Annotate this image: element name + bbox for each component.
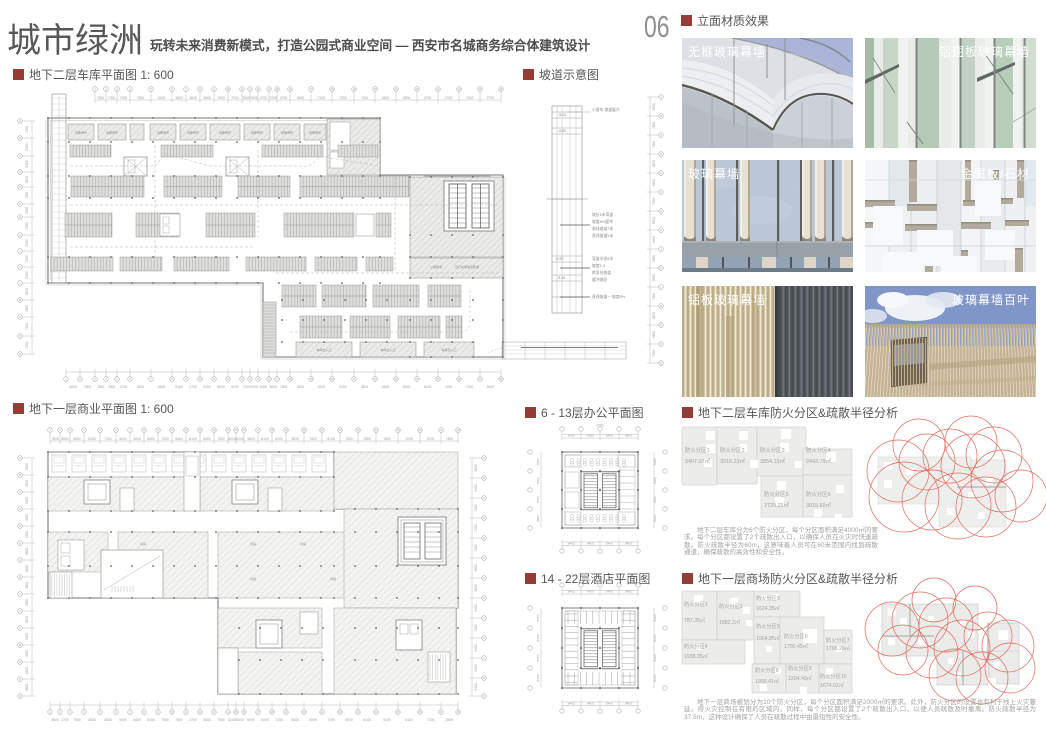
svg-text:8100: 8100 <box>652 103 656 110</box>
svg-text:8100: 8100 <box>203 385 211 389</box>
svg-text:8400: 8400 <box>536 674 540 681</box>
svg-text:7800: 7800 <box>345 437 353 441</box>
svg-text:N: N <box>19 315 21 319</box>
svg-text:A: A <box>483 456 485 460</box>
svg-text:G: G <box>19 215 21 219</box>
svg-text:商铺: 商铺 <box>300 541 306 546</box>
svg-text:K: K <box>660 266 662 270</box>
svg-text:3600: 3600 <box>51 718 59 722</box>
svg-text:5400: 5400 <box>203 437 211 441</box>
svg-text:7200: 7200 <box>652 141 656 148</box>
svg-text:5: 5 <box>99 710 101 714</box>
svg-text:3600: 3600 <box>133 437 141 441</box>
svg-text:1: 1 <box>65 377 67 381</box>
svg-text:防火分区5: 防火分区5 <box>756 622 780 630</box>
svg-text:3407.07㎡: 3407.07㎡ <box>685 457 710 465</box>
svg-text:8400: 8400 <box>653 477 657 484</box>
svg-text:6000: 6000 <box>231 385 239 389</box>
svg-text:坡度2-3: 坡度2-3 <box>592 263 605 268</box>
svg-text:1624.35㎡: 1624.35㎡ <box>756 604 781 612</box>
svg-text:28: 28 <box>499 377 503 381</box>
svg-text:J: J <box>19 592 21 596</box>
svg-text:防火分区6: 防火分区6 <box>784 632 808 640</box>
svg-text:8100: 8100 <box>25 463 29 470</box>
svg-text:8100: 8100 <box>275 437 283 441</box>
svg-text:22: 22 <box>338 428 342 432</box>
svg-text:7200: 7200 <box>652 122 656 129</box>
svg-text:L: L <box>19 626 21 630</box>
svg-text:8100: 8100 <box>228 718 236 722</box>
svg-text:3600: 3600 <box>652 331 656 338</box>
svg-text:8400: 8400 <box>568 702 575 706</box>
svg-text:17: 17 <box>256 710 260 714</box>
svg-text:26: 26 <box>418 428 422 432</box>
svg-text:5400: 5400 <box>474 664 478 671</box>
svg-text:23: 23 <box>356 710 360 714</box>
svg-text:12: 12 <box>198 428 202 432</box>
svg-text:N: N <box>19 660 21 664</box>
svg-text:8100: 8100 <box>339 385 347 389</box>
svg-text:8100: 8100 <box>318 385 326 389</box>
svg-text:4700: 4700 <box>596 424 603 428</box>
svg-text:8400: 8400 <box>536 614 540 621</box>
svg-text:8400: 8400 <box>587 702 594 706</box>
svg-text:7200: 7200 <box>652 198 656 205</box>
svg-text:-5.20: -5.20 <box>558 113 566 117</box>
svg-text:8: 8 <box>143 710 145 714</box>
svg-text:2700: 2700 <box>120 385 128 389</box>
svg-text:7800: 7800 <box>217 437 225 441</box>
svg-text:21: 21 <box>394 87 398 91</box>
svg-text:2700: 2700 <box>487 96 495 100</box>
svg-text:7200: 7200 <box>242 385 250 389</box>
svg-text:3600: 3600 <box>382 385 390 389</box>
svg-text:7200: 7200 <box>445 385 453 389</box>
svg-text:3600: 3600 <box>189 96 197 100</box>
svg-text:1674.02㎡: 1674.02㎡ <box>820 681 845 689</box>
svg-text:3600: 3600 <box>25 548 29 555</box>
svg-text:2: 2 <box>105 87 107 91</box>
svg-text:D: D <box>660 152 662 156</box>
svg-text:防火分区8: 防火分区8 <box>755 666 779 674</box>
svg-text:13: 13 <box>212 428 216 432</box>
svg-text:防火分区2: 防火分区2 <box>719 602 743 610</box>
svg-text:2700: 2700 <box>445 96 453 100</box>
svg-text:19: 19 <box>352 87 356 91</box>
svg-text:5400: 5400 <box>25 514 29 521</box>
svg-text:19: 19 <box>284 428 288 432</box>
svg-text:9: 9 <box>213 87 215 91</box>
svg-text:H: H <box>483 596 485 600</box>
svg-text:8100: 8100 <box>189 437 197 441</box>
svg-text:6000: 6000 <box>247 718 255 722</box>
svg-text:3600: 3600 <box>474 564 478 571</box>
svg-text:8100: 8100 <box>25 565 29 572</box>
svg-text:7: 7 <box>129 428 131 432</box>
svg-text:设备用房: 设备用房 <box>106 130 118 135</box>
svg-text:1904.95㎡: 1904.95㎡ <box>756 634 781 642</box>
svg-text:13: 13 <box>256 87 260 91</box>
svg-text:5400: 5400 <box>297 385 305 389</box>
svg-text:2700: 2700 <box>61 718 69 722</box>
svg-text:D: D <box>19 507 21 511</box>
svg-text:设备用房: 设备用房 <box>219 130 231 135</box>
svg-text:8100: 8100 <box>25 160 29 167</box>
svg-text:12: 12 <box>198 710 202 714</box>
svg-text:防火分区7: 防火分区7 <box>826 636 850 644</box>
svg-text:P: P <box>19 677 21 681</box>
svg-text:设备用房: 设备用房 <box>281 130 293 135</box>
svg-text:3600: 3600 <box>652 255 656 262</box>
svg-text:5400: 5400 <box>25 497 29 504</box>
svg-text:16: 16 <box>288 87 292 91</box>
svg-text:7200: 7200 <box>25 323 29 330</box>
svg-text:19: 19 <box>309 377 313 381</box>
svg-text:12: 12 <box>226 377 230 381</box>
svg-text:8400: 8400 <box>536 496 540 503</box>
svg-text:5400: 5400 <box>25 633 29 640</box>
svg-text:7200: 7200 <box>231 96 239 100</box>
svg-text:24: 24 <box>415 377 419 381</box>
svg-text:18: 18 <box>270 428 274 432</box>
svg-text:8100: 8100 <box>405 718 413 722</box>
svg-text:7800: 7800 <box>108 385 116 389</box>
svg-text:D: D <box>483 516 485 520</box>
svg-text:9: 9 <box>157 428 159 432</box>
svg-text:1: 1 <box>49 428 51 432</box>
svg-text:7800: 7800 <box>446 437 454 441</box>
svg-text:7200: 7200 <box>318 96 326 100</box>
svg-text:3015.69㎡: 3015.69㎡ <box>806 501 831 509</box>
svg-text:6000: 6000 <box>345 718 353 722</box>
svg-text:3600: 3600 <box>69 385 77 389</box>
svg-text:5: 5 <box>99 428 101 432</box>
svg-text:7200: 7200 <box>269 96 277 100</box>
svg-text:787.35㎡: 787.35㎡ <box>684 616 706 624</box>
svg-text:5400: 5400 <box>25 207 29 214</box>
svg-text:7800: 7800 <box>309 437 317 441</box>
svg-text:N: N <box>660 323 662 327</box>
svg-text:G: G <box>483 576 485 580</box>
svg-text:6000: 6000 <box>236 718 244 722</box>
svg-text:设备用房: 设备用房 <box>75 130 87 135</box>
svg-text:8100: 8100 <box>25 667 29 674</box>
svg-text:商铺: 商铺 <box>330 576 336 581</box>
svg-text:E: E <box>19 185 21 189</box>
svg-text:8100: 8100 <box>25 616 29 623</box>
svg-text:6000: 6000 <box>119 437 127 441</box>
svg-text:-6.60: -6.60 <box>558 129 566 133</box>
svg-text:J: J <box>19 249 21 253</box>
svg-text:7200: 7200 <box>25 126 29 133</box>
svg-text:5400: 5400 <box>119 718 127 722</box>
svg-text:8400: 8400 <box>625 702 632 706</box>
svg-text:3600: 3600 <box>203 96 211 100</box>
svg-text:8400: 8400 <box>653 674 657 681</box>
svg-text:E: E <box>660 171 662 175</box>
svg-text:10: 10 <box>198 377 202 381</box>
svg-text:3600: 3600 <box>291 437 299 441</box>
svg-text:7800: 7800 <box>383 437 391 441</box>
svg-text:3854.15㎡: 3854.15㎡ <box>760 457 785 465</box>
svg-text:3916.23㎡: 3916.23㎡ <box>720 457 745 465</box>
svg-text:F: F <box>483 556 485 560</box>
svg-text:25: 25 <box>396 710 400 714</box>
svg-text:F: F <box>19 202 21 206</box>
svg-text:3600: 3600 <box>88 718 96 722</box>
svg-text:13: 13 <box>212 710 216 714</box>
svg-text:7200: 7200 <box>405 437 413 441</box>
svg-text:23: 23 <box>436 87 440 91</box>
svg-text:23: 23 <box>394 377 398 381</box>
svg-text:8100: 8100 <box>652 217 656 224</box>
svg-text:8100: 8100 <box>424 385 432 389</box>
svg-text:2443.79㎡: 2443.79㎡ <box>806 457 831 465</box>
svg-text:8: 8 <box>143 428 145 432</box>
svg-text:8400: 8400 <box>536 515 540 522</box>
svg-text:26: 26 <box>499 87 503 91</box>
svg-text:24: 24 <box>374 710 378 714</box>
svg-text:21: 21 <box>352 377 356 381</box>
svg-text:3600: 3600 <box>25 480 29 487</box>
svg-text:5400: 5400 <box>25 650 29 657</box>
svg-text:16: 16 <box>242 428 246 432</box>
svg-text:7800: 7800 <box>51 437 59 441</box>
svg-text:自行车库坡道区域: 自行车库坡道区域 <box>455 264 479 269</box>
svg-text:3600: 3600 <box>446 718 454 722</box>
svg-text:17: 17 <box>275 377 279 381</box>
svg-text:8400: 8400 <box>625 590 632 594</box>
svg-text:3600: 3600 <box>25 582 29 589</box>
svg-text:6000: 6000 <box>228 437 236 441</box>
svg-text:L: L <box>483 656 485 660</box>
svg-text:24: 24 <box>374 428 378 432</box>
svg-text:8400: 8400 <box>568 542 575 546</box>
svg-text:7800: 7800 <box>363 437 371 441</box>
svg-text:10: 10 <box>170 428 174 432</box>
svg-text:7200: 7200 <box>104 437 112 441</box>
svg-text:7800: 7800 <box>250 96 258 100</box>
svg-text:商铺: 商铺 <box>250 576 256 581</box>
svg-text:18: 18 <box>270 710 274 714</box>
svg-text:防火分区10: 防火分区10 <box>820 672 847 680</box>
svg-text:22: 22 <box>415 87 419 91</box>
svg-text:28: 28 <box>456 428 460 432</box>
svg-text:15: 15 <box>275 87 279 91</box>
svg-text:8: 8 <box>199 87 201 91</box>
svg-text:设备用房: 设备用房 <box>251 130 263 135</box>
svg-text:7200: 7200 <box>474 504 478 511</box>
svg-text:5400: 5400 <box>25 531 29 538</box>
svg-text:5400: 5400 <box>474 484 478 491</box>
svg-text:20: 20 <box>373 87 377 91</box>
svg-text:4700: 4700 <box>596 580 603 584</box>
svg-text:B: B <box>19 473 21 477</box>
svg-text:N: N <box>483 694 485 698</box>
svg-text:6: 6 <box>115 710 117 714</box>
svg-text:10: 10 <box>226 87 230 91</box>
svg-text:27: 27 <box>439 710 443 714</box>
svg-text:3: 3 <box>69 428 71 432</box>
svg-text:防火分区2: 防火分区2 <box>720 446 745 454</box>
svg-text:7200: 7200 <box>652 350 656 357</box>
svg-text:26: 26 <box>418 710 422 714</box>
svg-text:21: 21 <box>320 428 324 432</box>
svg-text:B: B <box>660 114 662 118</box>
svg-text:7200: 7200 <box>361 96 369 100</box>
svg-text:商铺: 商铺 <box>140 541 146 546</box>
svg-text:7800: 7800 <box>84 385 92 389</box>
svg-text:7200: 7200 <box>120 96 128 100</box>
svg-text:5400: 5400 <box>474 604 478 611</box>
svg-text:25: 25 <box>396 428 400 432</box>
svg-text:22: 22 <box>373 377 377 381</box>
svg-text:5400: 5400 <box>175 437 183 441</box>
svg-text:2700: 2700 <box>189 718 197 722</box>
svg-text:7200: 7200 <box>275 718 283 722</box>
svg-text:28: 28 <box>456 710 460 714</box>
svg-text:7800: 7800 <box>242 96 250 100</box>
svg-text:7800: 7800 <box>97 385 105 389</box>
svg-text:8400: 8400 <box>653 515 657 522</box>
svg-text:3: 3 <box>69 710 71 714</box>
svg-text:C: C <box>19 154 21 158</box>
svg-text:小客车 坡道展开: 小客车 坡道展开 <box>592 107 620 112</box>
svg-text:2700: 2700 <box>427 437 435 441</box>
svg-text:2700: 2700 <box>280 96 288 100</box>
svg-text:直线坡道9米: 直线坡道9米 <box>592 233 613 238</box>
svg-text:4: 4 <box>129 87 131 91</box>
svg-text:8100: 8100 <box>25 271 29 278</box>
svg-text:防火分区4: 防火分区4 <box>806 446 831 454</box>
svg-text:防火分区5: 防火分区5 <box>764 490 789 498</box>
svg-text:C: C <box>483 496 485 500</box>
svg-text:6: 6 <box>171 87 173 91</box>
svg-text:5400: 5400 <box>133 718 141 722</box>
svg-text:2: 2 <box>59 428 61 432</box>
svg-text:6000: 6000 <box>73 437 81 441</box>
svg-text:5400: 5400 <box>297 96 305 100</box>
svg-text:J: J <box>483 616 485 620</box>
svg-text:8100: 8100 <box>25 176 29 183</box>
svg-text:防火分区3: 防火分区3 <box>760 446 785 454</box>
svg-text:7200: 7200 <box>474 524 478 531</box>
svg-text:商铺: 商铺 <box>250 541 256 546</box>
svg-text:14: 14 <box>248 377 252 381</box>
svg-text:防火分区4: 防火分区4 <box>684 642 708 650</box>
svg-text:19: 19 <box>284 710 288 714</box>
svg-text:8100: 8100 <box>25 143 29 150</box>
svg-text:8400: 8400 <box>568 434 575 438</box>
svg-text:6: 6 <box>115 428 117 432</box>
svg-text:8400: 8400 <box>653 614 657 621</box>
svg-text:6000: 6000 <box>260 385 268 389</box>
svg-text:1: 1 <box>49 710 51 714</box>
svg-text:A: A <box>19 119 21 123</box>
svg-text:5400: 5400 <box>474 683 478 690</box>
svg-text:3600: 3600 <box>25 599 29 606</box>
svg-text:1900.41㎡: 1900.41㎡ <box>755 677 780 685</box>
svg-text:7200: 7200 <box>161 437 169 441</box>
svg-text:C: C <box>660 133 662 137</box>
svg-text:坡度8%缓冲: 坡度8%缓冲 <box>592 219 613 224</box>
svg-text:3600: 3600 <box>25 305 29 312</box>
svg-text:K: K <box>19 609 21 613</box>
svg-text:7200: 7200 <box>327 718 335 722</box>
svg-text:15: 15 <box>256 377 260 381</box>
svg-text:8400: 8400 <box>587 434 594 438</box>
svg-text:5400: 5400 <box>25 239 29 246</box>
svg-text:24: 24 <box>457 87 461 91</box>
svg-text:7200: 7200 <box>466 385 474 389</box>
svg-text:缓冲坡段: 缓冲坡段 <box>592 277 607 282</box>
svg-text:坡长6米弯道: 坡长6米弯道 <box>592 212 613 217</box>
svg-text:11: 11 <box>213 377 216 381</box>
svg-text:防火分区1: 防火分区1 <box>684 600 708 608</box>
svg-text:7200: 7200 <box>108 96 116 100</box>
svg-text:12: 12 <box>248 87 252 91</box>
svg-text:6000: 6000 <box>217 385 225 389</box>
svg-text:4: 4 <box>83 428 85 432</box>
svg-text:7200: 7200 <box>466 96 474 100</box>
svg-text:5400: 5400 <box>383 718 391 722</box>
svg-text:设备用房: 设备用房 <box>309 130 321 135</box>
svg-text:22: 22 <box>338 710 342 714</box>
svg-text:2729.25㎡: 2729.25㎡ <box>764 501 789 509</box>
svg-text:3600: 3600 <box>403 96 411 100</box>
svg-text:车库出入口: 车库出入口 <box>380 347 395 352</box>
svg-text:3600: 3600 <box>269 385 277 389</box>
svg-text:8400: 8400 <box>536 634 540 641</box>
svg-text:3600: 3600 <box>474 464 478 471</box>
svg-text:P: P <box>660 342 662 346</box>
svg-text:曲线坡道7米: 曲线坡道7米 <box>592 226 613 231</box>
svg-text:1882.2㎡: 1882.2㎡ <box>719 618 741 626</box>
svg-text:8400: 8400 <box>653 654 657 661</box>
svg-text:1: 1 <box>94 87 96 91</box>
svg-text:2: 2 <box>59 710 61 714</box>
svg-text:7800: 7800 <box>97 96 105 100</box>
svg-text:3: 3 <box>116 87 118 91</box>
svg-text:7800: 7800 <box>280 385 288 389</box>
svg-text:8400: 8400 <box>606 590 613 594</box>
svg-text:6: 6 <box>129 377 131 381</box>
svg-text:防火分区6: 防火分区6 <box>806 490 831 498</box>
svg-text:8100: 8100 <box>652 160 656 167</box>
svg-text:14: 14 <box>267 87 271 91</box>
svg-text:8400: 8400 <box>536 458 540 465</box>
svg-text:E: E <box>483 536 485 540</box>
svg-text:25: 25 <box>436 377 440 381</box>
svg-text:7800: 7800 <box>161 718 169 722</box>
svg-text:6000: 6000 <box>261 718 269 722</box>
svg-text:7200: 7200 <box>339 96 347 100</box>
svg-text:1938.35㎡: 1938.35㎡ <box>684 652 709 660</box>
svg-text:7800: 7800 <box>175 718 183 722</box>
svg-text:3600: 3600 <box>61 437 69 441</box>
svg-text:防火分区1: 防火分区1 <box>685 446 710 454</box>
svg-text:B: B <box>483 476 485 480</box>
svg-text:5400: 5400 <box>487 385 495 389</box>
svg-text:5400: 5400 <box>137 385 145 389</box>
svg-text:2700: 2700 <box>260 96 268 100</box>
svg-text:J: J <box>660 247 662 251</box>
svg-text:H: H <box>660 228 662 232</box>
svg-text:8100: 8100 <box>363 718 371 722</box>
svg-text:27: 27 <box>439 428 443 432</box>
svg-text:27: 27 <box>478 377 482 381</box>
svg-text:20: 20 <box>330 377 334 381</box>
